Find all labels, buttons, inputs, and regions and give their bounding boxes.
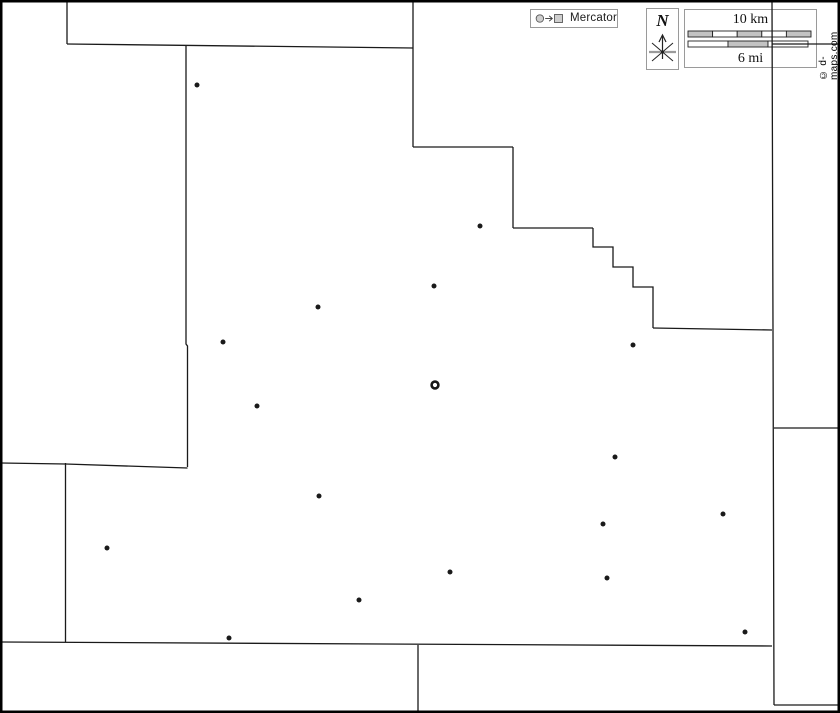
boundary-line — [186, 46, 188, 467]
compass-label: N — [647, 11, 678, 31]
legend-symbols — [535, 12, 566, 25]
km-bar-segment — [786, 31, 811, 37]
boundary-line — [1, 463, 188, 468]
city-dot — [432, 284, 437, 289]
km-bar-segment — [713, 31, 738, 37]
city-dot — [601, 522, 606, 527]
compass-box: N — [646, 8, 679, 70]
city-circle-icon — [536, 15, 543, 22]
km-scale-bar — [687, 30, 812, 38]
county-seat-marker — [432, 382, 439, 389]
city-dot — [478, 224, 483, 229]
scale-bar-box: 10 km 6 mi — [684, 9, 817, 68]
projection-legend: Mercator — [530, 9, 618, 28]
boundary-line — [653, 328, 772, 330]
boundary-line — [67, 44, 413, 48]
mi-scale-bar — [687, 40, 812, 48]
legend-label: Mercator — [570, 13, 617, 25]
mi-bar-segment — [728, 41, 768, 47]
boundary-line — [1, 642, 772, 646]
city-dot — [357, 598, 362, 603]
map-boundaries-layer — [0, 0, 840, 713]
north-arrow-icon — [647, 31, 678, 67]
arrow-right-icon — [545, 16, 552, 21]
mi-bar-segment — [768, 41, 808, 47]
km-bar-segment — [762, 31, 787, 37]
city-dot — [195, 83, 200, 88]
scale-mi-label: 6 mi — [685, 52, 816, 66]
boundary-line — [593, 228, 653, 328]
city-dot — [105, 546, 110, 551]
city-dot — [316, 305, 321, 310]
boundary-line — [772, 1, 774, 705]
city-dot — [227, 636, 232, 641]
city-dot — [613, 455, 618, 460]
map-canvas: Mercator N 10 km 6 mi © d-maps.com — [0, 0, 840, 713]
town-square-icon — [554, 15, 562, 23]
city-dot — [605, 576, 610, 581]
city-dot — [317, 494, 322, 499]
map-frame — [1, 1, 839, 712]
city-dot — [631, 343, 636, 348]
city-dot — [448, 570, 453, 575]
km-bar-segment — [688, 31, 713, 37]
city-dot — [255, 404, 260, 409]
watermark: © d-maps.com — [818, 12, 834, 80]
scale-km-label: 10 km — [685, 13, 816, 27]
mi-bar-segment — [688, 41, 728, 47]
city-dot — [721, 512, 726, 517]
km-bar-segment — [737, 31, 762, 37]
city-dot — [221, 340, 226, 345]
city-dot — [743, 630, 748, 635]
